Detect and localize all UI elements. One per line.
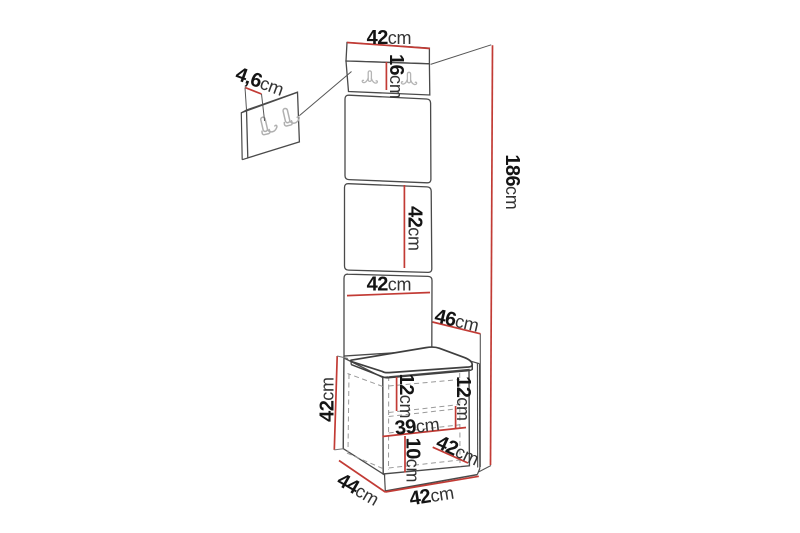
svg-text:4,6cm: 4,6cm — [233, 63, 287, 101]
svg-text:12cm: 12cm — [395, 374, 417, 419]
svg-text:42cm: 42cm — [367, 27, 412, 49]
svg-text:42cm: 42cm — [317, 377, 339, 422]
svg-text:46cm: 46cm — [433, 305, 481, 336]
svg-text:16cm: 16cm — [385, 54, 407, 99]
svg-text:44cm: 44cm — [333, 469, 383, 510]
svg-text:10cm: 10cm — [402, 438, 424, 483]
svg-text:12cm: 12cm — [452, 376, 474, 421]
svg-text:186cm: 186cm — [501, 154, 523, 209]
svg-text:42cm: 42cm — [367, 274, 412, 296]
svg-text:42cm: 42cm — [404, 206, 426, 251]
